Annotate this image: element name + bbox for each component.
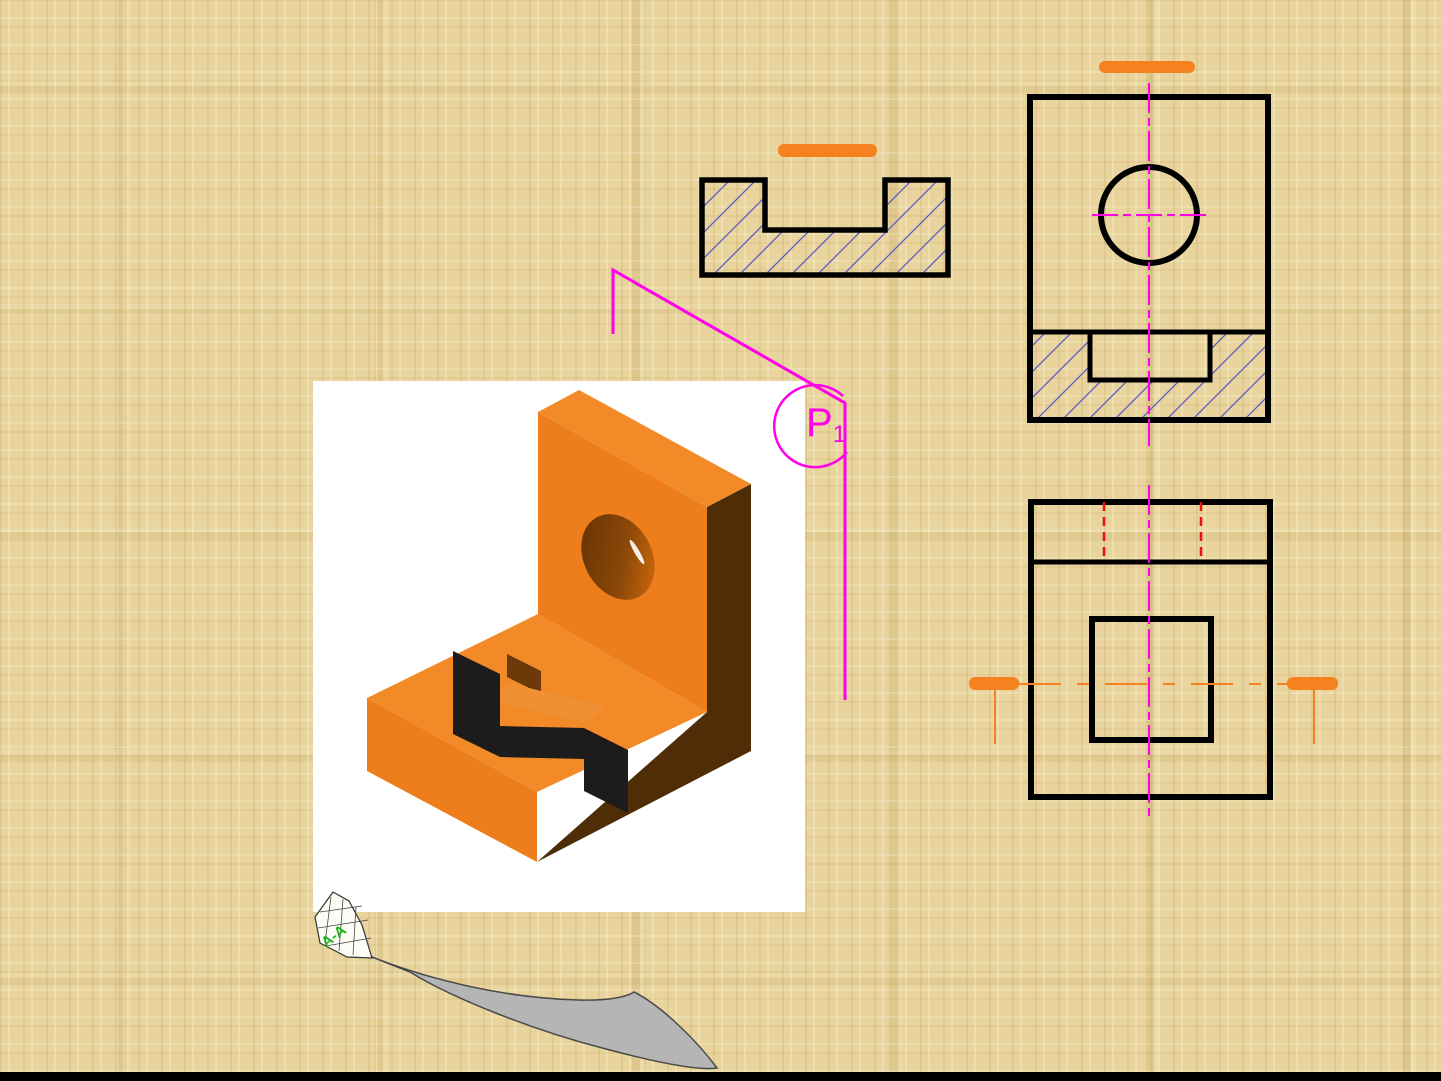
- p1-label: P1: [806, 401, 846, 448]
- slide-canvas: P1 A-A: [0, 0, 1441, 1081]
- square-pocket-outline: [1092, 619, 1211, 740]
- front-view: [1030, 61, 1268, 446]
- cut-face-channel-bottom: [500, 726, 584, 759]
- cutting-plane-end-right: [1287, 677, 1338, 690]
- removed-section-view: [702, 144, 948, 275]
- section-direction-arrow: A-A: [315, 892, 717, 1069]
- section-plane-marker-top: [778, 144, 877, 157]
- top-view-outline: [1031, 502, 1270, 797]
- p1-label-main: P: [806, 401, 833, 445]
- swoosh-body: [372, 957, 717, 1069]
- isometric-panel: [313, 381, 805, 912]
- cutting-plane-end-left: [969, 677, 1019, 690]
- top-view: [969, 485, 1338, 816]
- section-profile-outline: [702, 180, 948, 275]
- drawing-layer: P1 A-A: [0, 0, 1441, 1081]
- p1-label-sub: 1: [833, 421, 846, 448]
- section-plane-marker-front: [1099, 61, 1195, 73]
- bottom-bar: [0, 1072, 1441, 1081]
